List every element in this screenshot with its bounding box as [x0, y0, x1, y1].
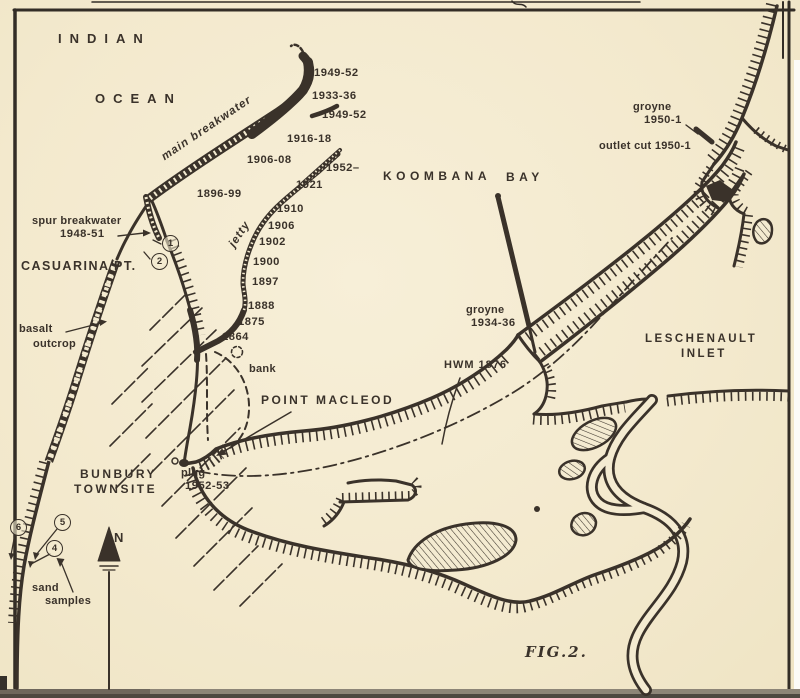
date-jetty-1875: 1875	[238, 316, 265, 328]
label-plug-1: plug	[181, 467, 205, 479]
marker-circle-4: 4	[46, 540, 63, 557]
label-outlet-cut: outlet cut 1950-1	[599, 140, 691, 152]
label-leschenault-inlet-1: LESCHENAULT	[645, 333, 757, 346]
bank-outline	[206, 352, 249, 453]
date-jetty-1910: 1910	[277, 203, 304, 215]
label-leschenault-inlet-2: INLET	[681, 348, 727, 361]
label-north: N	[114, 531, 123, 545]
label-groyne-1950-2: 1950-1	[644, 114, 682, 126]
basalt-outcrop-band	[46, 260, 120, 462]
label-basalt-outcrop-2: outcrop	[33, 338, 76, 350]
label-groyne-1934-2: 1934-36	[471, 317, 516, 329]
lagoon-islands	[320, 411, 621, 570]
north-arrow	[98, 527, 120, 689]
label-spur-breakwater: spur breakwater	[32, 215, 121, 227]
sand-spit	[518, 142, 744, 414]
label-indian-ocean-2: OCEAN	[95, 92, 182, 106]
date-jetty-1902: 1902	[259, 236, 286, 248]
label-sand-samples-2: samples	[45, 595, 91, 607]
label-sand-samples-1: sand	[32, 582, 59, 594]
label-point-macleod: POINT MACLEOD	[261, 394, 394, 407]
date-breakwater-1949-52-top: 1949-52	[314, 67, 359, 79]
marker-circle-1: 1	[162, 235, 179, 252]
date-breakwater-1896-99: 1896-99	[197, 188, 242, 200]
date-jetty-1900: 1900	[253, 256, 280, 268]
date-breakwater-1906-08: 1906-08	[247, 154, 292, 166]
label-bank: bank	[249, 363, 276, 375]
label-plug-2: 1952-53	[185, 480, 230, 492]
label-groyne-1934-1: groyne	[466, 304, 504, 316]
label-bunbury-townsite-1: BUNBURY	[80, 468, 157, 481]
date-jetty-1888: 1888	[248, 300, 275, 312]
date-jetty-1921: 1921	[296, 179, 323, 191]
marker-circle-6: 6	[10, 519, 27, 536]
date-jetty-1906: 1906	[268, 220, 295, 232]
label-hwm-1876: HWM 1876	[444, 359, 507, 371]
marker-circle-2: 2	[151, 253, 168, 270]
label-indian-ocean-1: INDIAN	[58, 32, 151, 46]
date-breakwater-1949-52: 1949-52	[322, 109, 367, 121]
date-jetty-1864: 1864	[222, 331, 249, 343]
label-groyne-1950-1: groyne	[633, 101, 671, 113]
date-breakwater-1933-36: 1933-36	[312, 90, 357, 102]
label-casuarina-pt: CASUARINA PT.	[21, 260, 137, 274]
main-breakwater-line	[150, 45, 337, 198]
label-koombana-bay-2: BAY	[506, 171, 544, 184]
label-basalt-outcrop-1: basalt	[19, 323, 53, 335]
groyne-1950-line	[696, 129, 712, 142]
label-koombana-bay-1: KOOMBANA	[383, 170, 491, 183]
map-figure: INDIAN OCEAN KOOMBANA BAY LESCHENAULT IN…	[0, 0, 800, 698]
date-breakwater-1916-18: 1916-18	[287, 133, 332, 145]
label-spur-breakwater-date: 1948-51	[60, 228, 105, 240]
marker-circle-5: 5	[54, 514, 71, 531]
figure-caption: FIG.2.	[525, 644, 588, 661]
date-jetty-1952: 1952–	[326, 162, 360, 174]
label-bunbury-townsite-2: TOWNSITE	[74, 483, 157, 496]
date-jetty-1897: 1897	[252, 276, 279, 288]
